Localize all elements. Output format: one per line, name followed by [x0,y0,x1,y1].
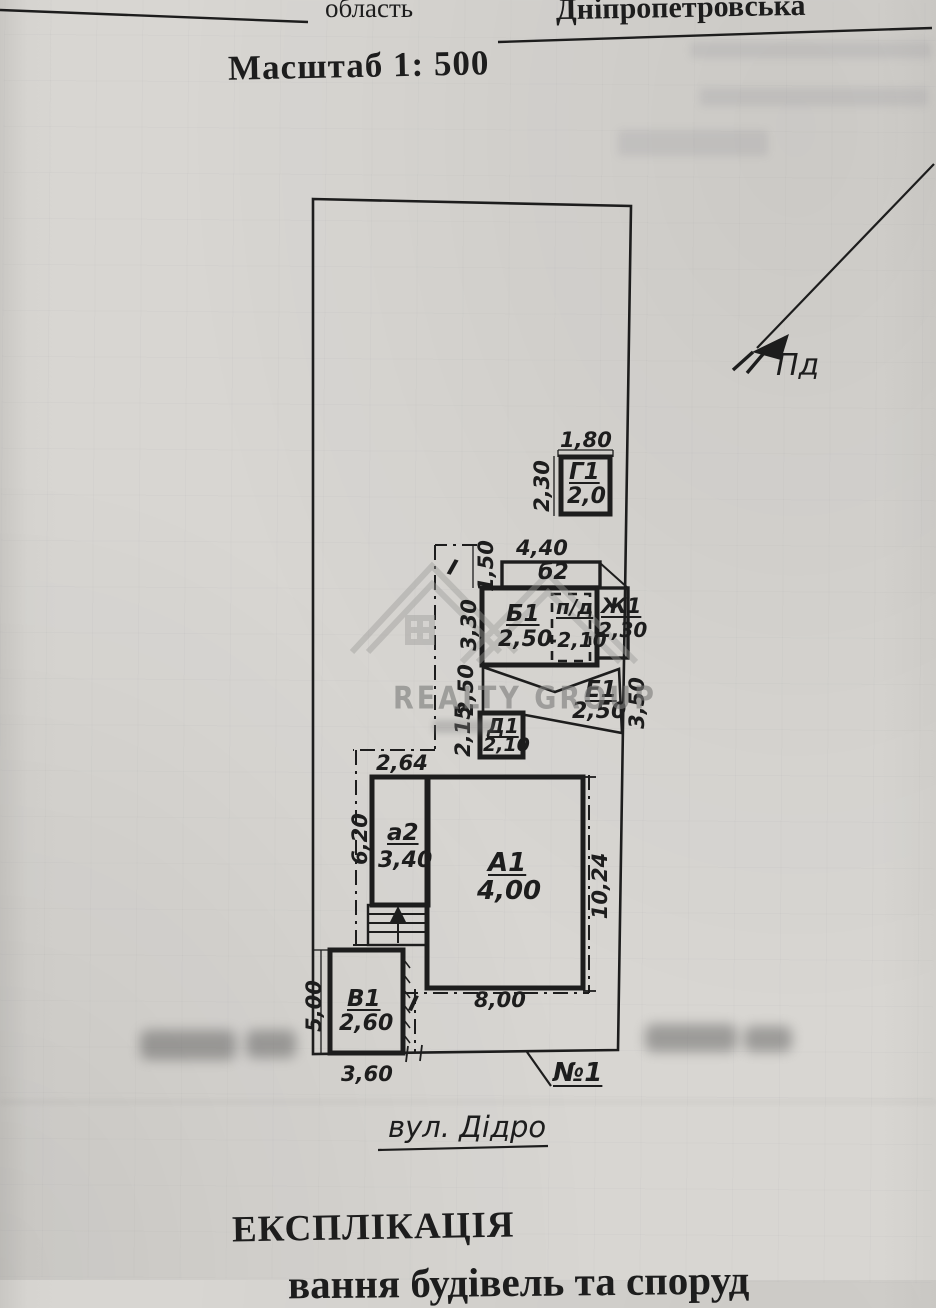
oblast-underline [498,28,932,42]
south-arrow-line [757,164,934,348]
building-b1-label: Б1 [506,601,540,627]
street-underline [378,1146,548,1150]
building-a2-height: 3,40 [378,848,432,873]
redacted-house-label-right [645,1024,737,1052]
building-zh1-height: 2,30 [598,618,647,642]
building-b1-height: 2,50 [498,627,552,652]
dim-g1-width: 1,80 [560,428,612,452]
dim-b1-depth: 3,30 [457,599,481,651]
building-v1-label: В1 [347,986,381,1012]
house-number-label: №1 [553,1058,602,1088]
oblast-value: Дніпропетровська [556,0,806,27]
redacted-house-label-right [744,1026,792,1052]
compass-south-label: Пд [776,348,819,383]
boundary-tick [420,1045,422,1061]
building-a1-height: 4,00 [477,876,541,906]
dim-a2-depth: 6,20 [348,813,372,865]
watermark-subtext-artifact [433,720,495,733]
watermark-brand-text: REALTY GROUP [393,681,657,717]
dim-a1-width: 8,00 [474,988,526,1012]
house-number-leader [527,1052,551,1086]
oblast-label: область [325,0,413,24]
building-d1-height: 2,10 [483,734,530,756]
dim-v1-depth: 5,00 [302,980,326,1032]
redacted-house-label-left [140,1030,236,1060]
building-g1-height: 2,0 [567,484,606,509]
building-v1-height: 2,60 [339,1011,393,1036]
building-g1-label: Г1 [569,459,600,485]
footer-title: ЕКСПЛІКАЦІЯ [232,1204,515,1252]
building-zh1-label: Ж1 [601,594,641,618]
dim-a2-width: 2,64 [376,751,428,775]
building-a2-label: а2 [387,820,419,846]
redacted-house-label-left [246,1030,296,1058]
scale-title: Масштаб 1: 500 [228,43,490,88]
boundary-tick [406,1046,408,1062]
dim-g1-depth: 2,30 [530,460,554,512]
building-a1-label: А1 [488,848,526,878]
dim-b2-depth: 1,50 [474,540,498,592]
structure-pd-label: п/д [556,595,593,619]
dim-a1-depth: 10,24 [588,853,612,919]
street-name-label: вул. Дідро [388,1110,546,1144]
scanned-plan-page: область Дніпропетровська Масштаб 1: 500 … [0,0,936,1280]
building-b2-label: б2 [538,560,569,585]
dim-b2-width: 4,40 [516,536,568,560]
dim-v1-width: 3,60 [341,1062,393,1086]
blank-field-line [0,10,308,22]
footer-subtitle-partial: вання будівель та споруд [288,1256,750,1308]
